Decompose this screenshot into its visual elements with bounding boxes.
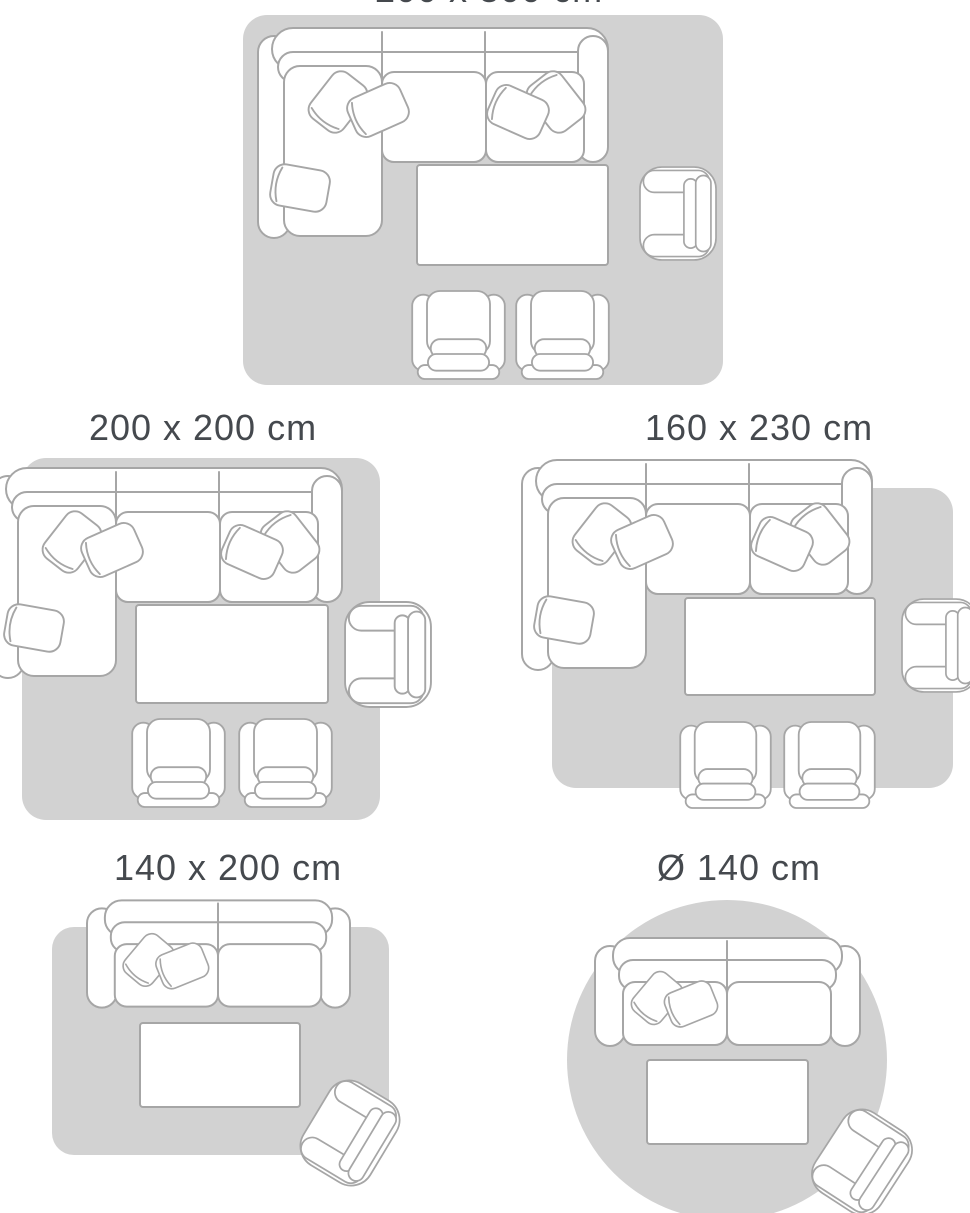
armchair [640, 167, 716, 260]
two-seat-sofa [87, 900, 350, 1007]
diagram-160x230 [522, 460, 970, 808]
footstool [412, 291, 505, 379]
footstool [239, 719, 332, 807]
armchair [345, 602, 431, 707]
footstool [132, 719, 225, 807]
coffee-table [136, 605, 328, 703]
coffee-table [685, 598, 875, 695]
diagram-200x200 [0, 458, 431, 820]
layout-illustrations [0, 0, 970, 1213]
rug-size-guide: 200 x 300 cm 200 x 200 cm 160 x 230 cm 1… [0, 0, 970, 1213]
diagram-d140 [567, 900, 921, 1213]
coffee-table [417, 165, 608, 265]
two-seat-sofa [595, 938, 860, 1046]
coffee-table [140, 1023, 300, 1107]
diagram-140x200 [52, 900, 408, 1194]
footstool [680, 722, 771, 808]
diagram-200x300 [243, 15, 723, 385]
coffee-table [647, 1060, 808, 1144]
footstool [784, 722, 875, 808]
footstool [516, 291, 609, 379]
armchair [902, 599, 970, 692]
